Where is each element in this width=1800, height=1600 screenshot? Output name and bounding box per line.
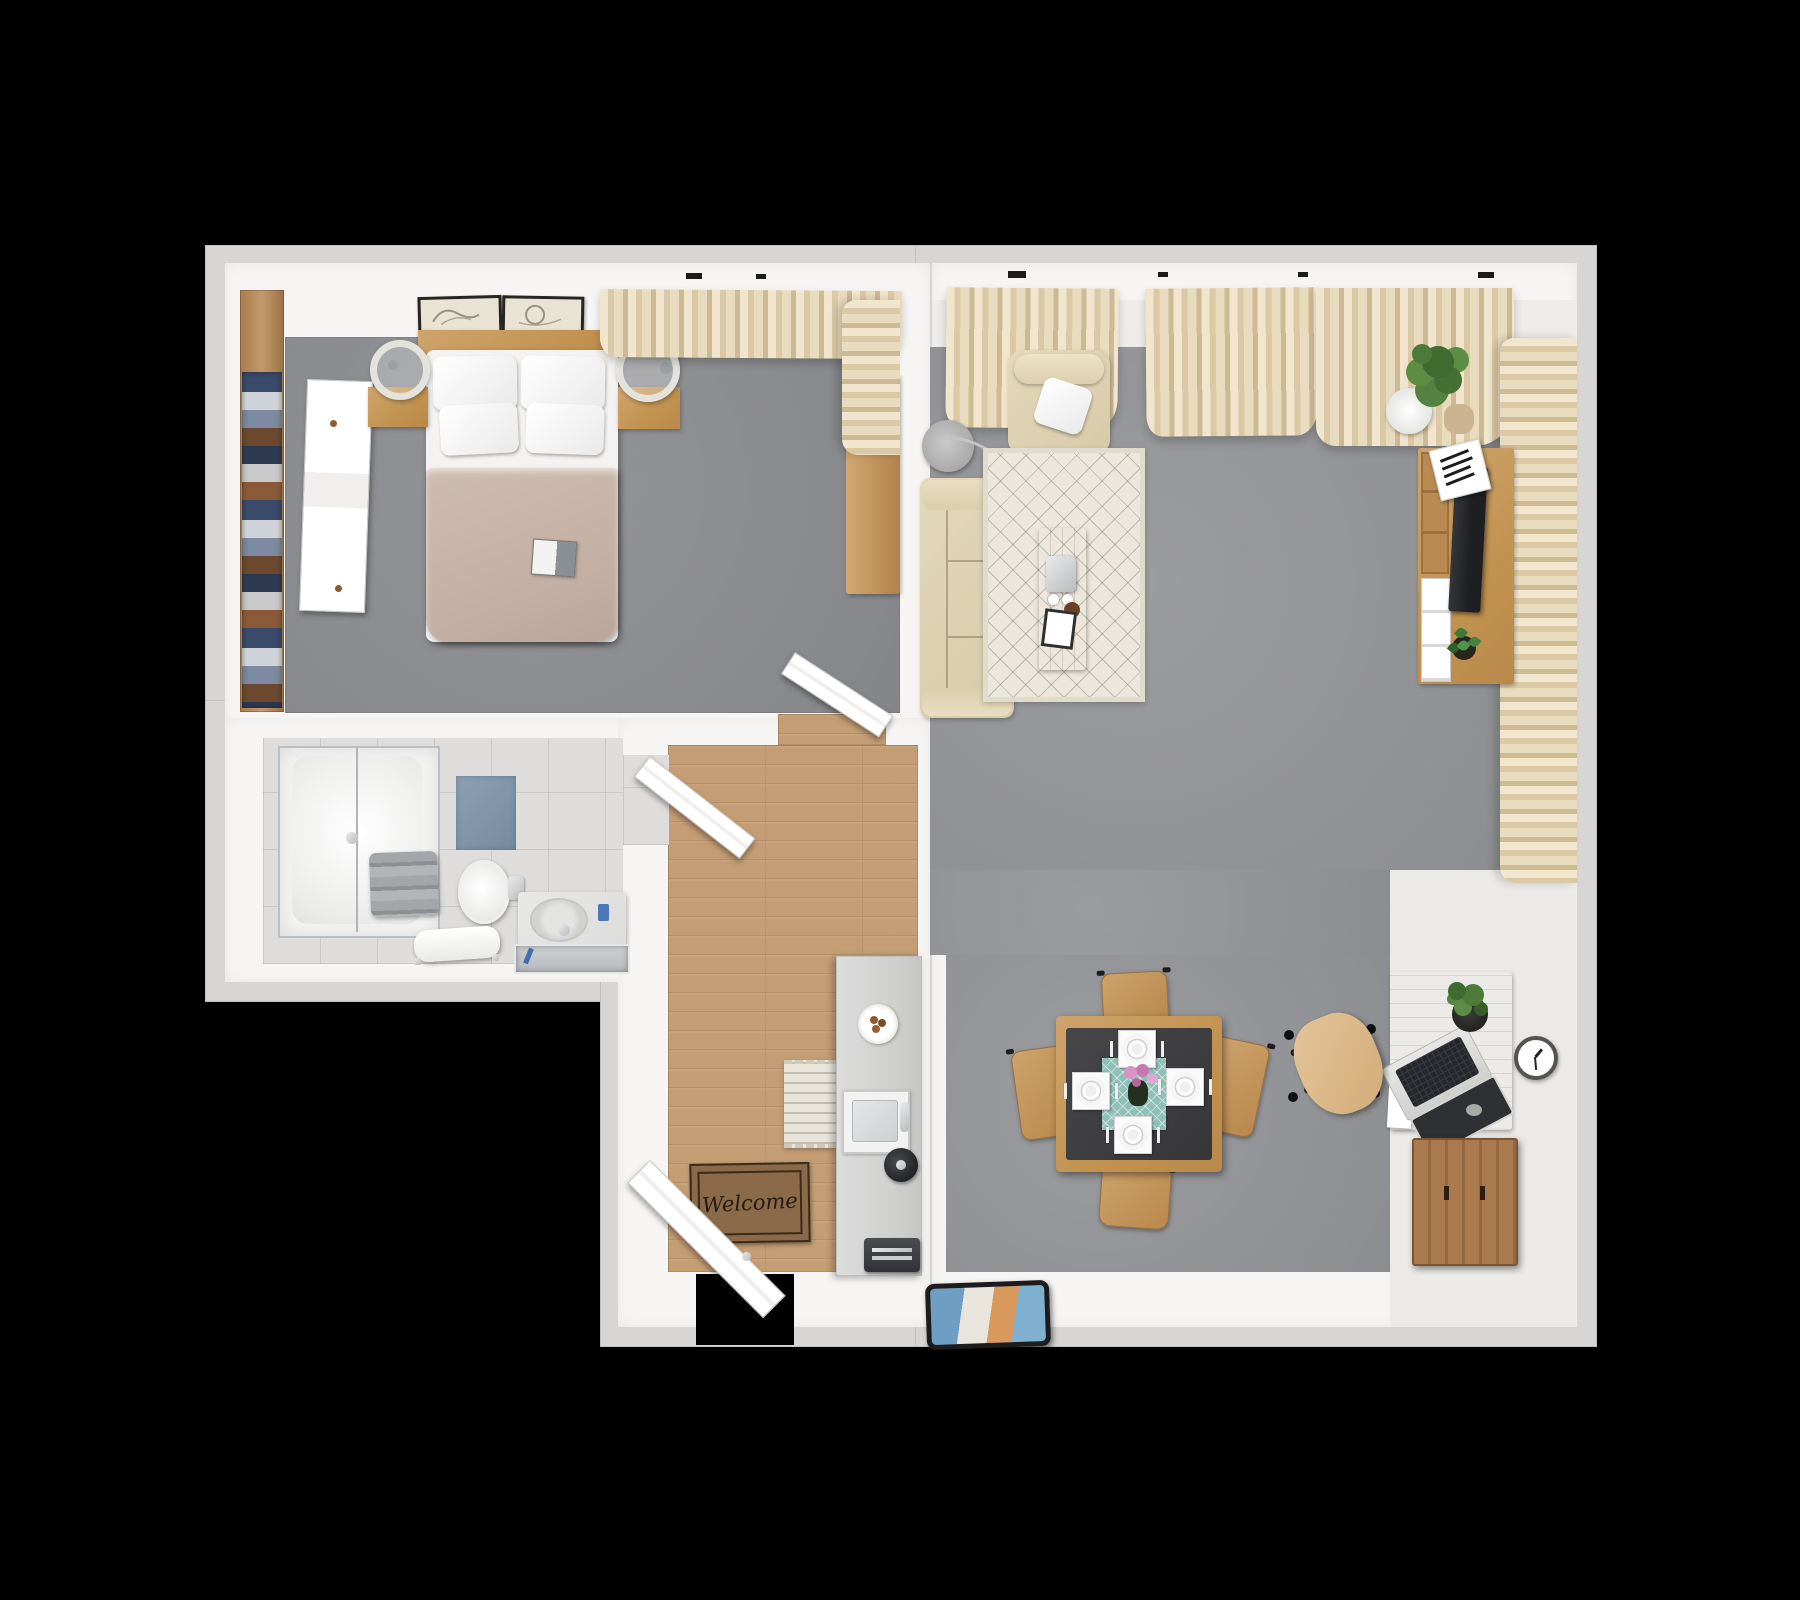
shower-faucet	[346, 832, 358, 844]
kitchen-sink-basin	[852, 1100, 898, 1142]
toaster-slots	[872, 1248, 912, 1252]
vanity-sink	[530, 898, 588, 942]
floor-plan-scene: Welcome	[0, 0, 1800, 1600]
magazine-on-bed	[531, 539, 577, 578]
window-mark-living-3	[1298, 272, 1308, 277]
living-floor-mid	[930, 870, 1390, 955]
sideboard	[1412, 1138, 1518, 1266]
cabinet-plant-pot	[1452, 636, 1476, 660]
window-mark-living-1	[1008, 271, 1026, 278]
coffee-table	[1038, 528, 1086, 670]
towel-stack	[369, 851, 439, 917]
towel-bench	[413, 925, 501, 963]
bath-mat	[456, 776, 516, 850]
sliding-door-handle-bottom	[335, 585, 342, 592]
sideboard-handle-right	[1480, 1186, 1485, 1200]
desk-plant-leaves	[1448, 982, 1466, 1000]
place-setting-west	[1072, 1072, 1110, 1110]
bench-leg-right	[492, 954, 499, 961]
espresso-cups	[1048, 594, 1059, 605]
living-curtain-north-2	[1145, 287, 1318, 436]
toothbrush-cup	[598, 904, 609, 921]
art-squiggle-icon	[421, 298, 494, 332]
welcome-mat-text: Welcome	[702, 1189, 799, 1218]
tv-cabinet-drawers	[1421, 578, 1451, 682]
window-mark-living-4	[1478, 272, 1494, 278]
kitchen-faucet	[900, 1102, 909, 1132]
bed-pillow-front-right	[525, 403, 605, 456]
toilet-bowl	[458, 860, 510, 924]
wardrobe-clothes	[242, 372, 282, 708]
sideboard-handle-left	[1444, 1186, 1449, 1200]
office-chair-wheel-3	[1288, 1092, 1298, 1102]
flower-vase	[1128, 1080, 1148, 1106]
runner-rug	[784, 1060, 836, 1148]
sliding-door-handle-top	[330, 420, 337, 427]
tablet	[925, 1280, 1051, 1350]
cookies	[870, 1016, 878, 1024]
window-mark-bedroom-1	[686, 273, 702, 279]
lamp-left	[370, 340, 430, 400]
bed-blanket	[426, 468, 618, 642]
vanity-faucet	[558, 924, 570, 936]
cookie-plate	[858, 1004, 898, 1044]
plant-foliage	[1412, 344, 1432, 364]
place-setting-south	[1114, 1116, 1152, 1154]
toaster	[864, 1238, 920, 1272]
plant-stand	[1386, 388, 1432, 434]
flowers	[1124, 1066, 1137, 1079]
office-chair-wheel-1	[1284, 1030, 1294, 1040]
espresso-maker	[1046, 556, 1076, 592]
dining-chair-south	[1098, 1166, 1172, 1231]
wardrobe-sliding-door	[299, 379, 373, 613]
window-mark-living-2	[1158, 272, 1168, 277]
lamp-right-bulb	[660, 362, 672, 374]
place-setting-north	[1118, 1030, 1156, 1068]
art-squiggle-icon	[505, 298, 576, 331]
entry-door-handle	[742, 1252, 751, 1261]
coffee-table-card	[1041, 608, 1077, 650]
sofa-back-edge	[946, 486, 948, 710]
desk-pebble	[1466, 1104, 1482, 1116]
desk-plant-pot	[1452, 996, 1488, 1032]
place-setting-east	[1166, 1068, 1204, 1106]
magazine-text-icon	[1430, 440, 1491, 501]
lamp-left-bulb	[388, 360, 398, 370]
window-mark-bedroom-2	[756, 274, 766, 279]
bed-pillow-front-left	[439, 402, 520, 456]
bedroom-curtain-corner	[842, 300, 900, 455]
bench-leg-left	[414, 958, 421, 965]
plant-pot	[1444, 404, 1474, 434]
kettle-lid	[896, 1160, 906, 1170]
